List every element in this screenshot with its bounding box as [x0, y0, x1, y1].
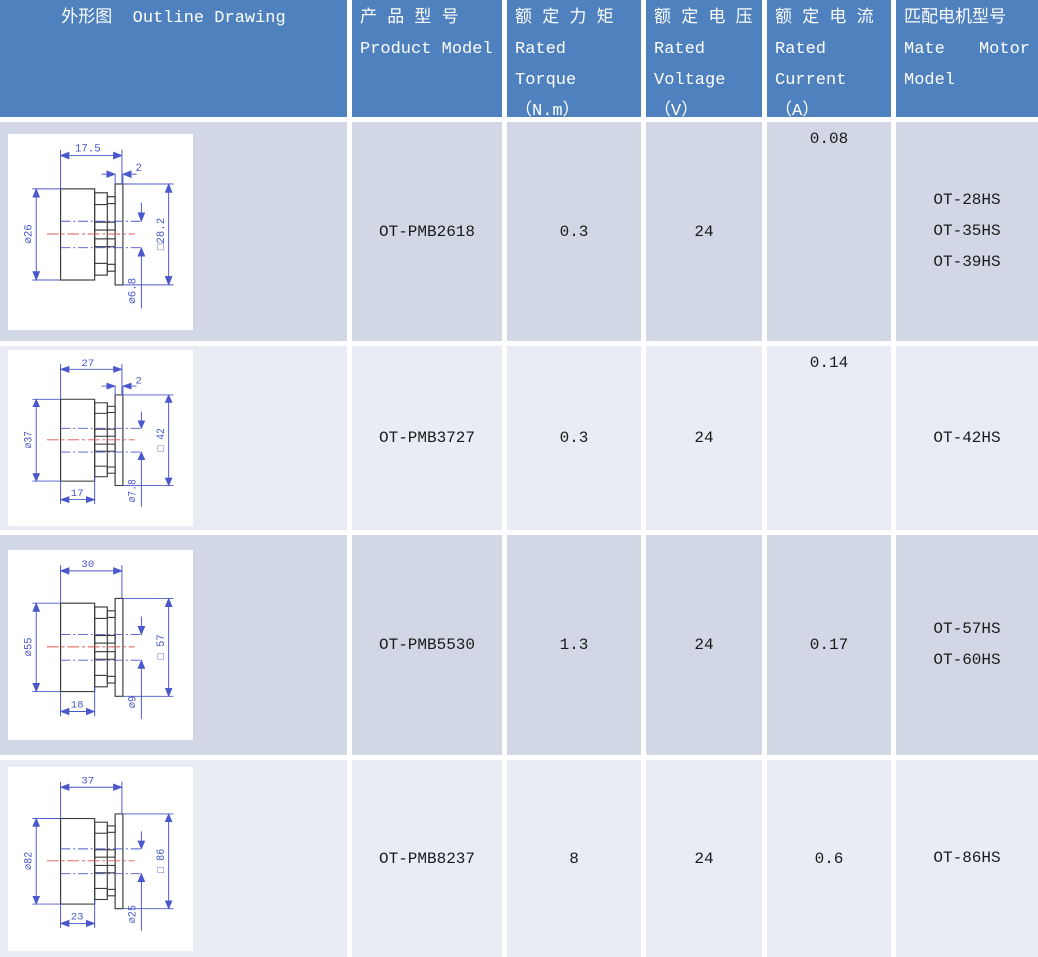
- dim-diameter-label: ⌀37: [24, 431, 36, 448]
- mate-motor-item: OT-39HS: [933, 247, 1000, 278]
- outline-drawing-cell: 37 ⌀82 □ 86 ⌀25 2: [0, 760, 347, 957]
- brake-outline-svg: 17.5 ⌀26 □28.2 ⌀6.8: [8, 134, 193, 330]
- header-rated-voltage-en2: Voltage: [654, 65, 754, 96]
- dim-shaft-label: ⌀25: [127, 905, 139, 923]
- outline-drawing-ot-pmb3727: 27 ⌀37 □ 42 ⌀7.8: [8, 350, 193, 526]
- rated-current-cell: 0.14: [767, 346, 891, 530]
- header-product-model-zh: 产 品 型 号: [360, 3, 494, 34]
- dim-hub-length-label: 17: [71, 489, 84, 499]
- mate-motor-item: OT-28HS: [933, 185, 1000, 216]
- dimension-lines: 30 ⌀55 □ 57 ⌀9 18: [23, 559, 173, 719]
- header-mate-motor: 匹配电机型号 Mate Motor Model: [896, 0, 1038, 117]
- mate-motor-list: OT-57HS OT-60HS: [933, 614, 1000, 676]
- dim-diameter-label: ⌀26: [23, 224, 35, 243]
- header-rated-voltage-zh: 额 定 电 压: [654, 3, 754, 34]
- product-model-cell: OT-PMB8237: [352, 760, 502, 957]
- dim-square-label: □ 57: [156, 634, 168, 659]
- mate-motor-item: OT-57HS: [933, 614, 1000, 645]
- dim-diameter-label: ⌀55: [23, 637, 35, 656]
- outline-drawing-ot-pmb2618: 17.5 ⌀26 □28.2 ⌀6.8: [8, 134, 193, 330]
- rated-voltage-cell: 24: [646, 535, 762, 755]
- rated-torque-cell: 1.3: [507, 535, 641, 755]
- product-model-cell: OT-PMB5530: [352, 535, 502, 755]
- rated-torque-cell: 0.3: [507, 122, 641, 341]
- header-rated-current-zh: 额 定 电 流: [775, 3, 883, 34]
- rated-voltage-cell: 24: [646, 122, 762, 341]
- header-rated-current-en1: Rated: [775, 34, 883, 65]
- header-rated-torque: 额 定 力 矩 Rated Torque （N.m）: [507, 0, 641, 117]
- rated-voltage-cell: 24: [646, 346, 762, 530]
- mate-motor-list: OT-28HS OT-35HS OT-39HS: [933, 185, 1000, 278]
- brake-outline-svg: 37 ⌀82 □ 86 ⌀25 2: [8, 767, 193, 951]
- dim-flange-label: 2: [136, 163, 142, 175]
- mate-motor-item: OT-86HS: [933, 843, 1000, 874]
- dim-shaft-label: ⌀7.8: [128, 479, 140, 502]
- dim-length-label: 27: [81, 359, 94, 369]
- header-mate-motor-en1: Mate Motor: [904, 34, 1030, 65]
- header-product-model-en: Product Model: [360, 34, 494, 65]
- header-outline-drawing-label: 外形图 Outline Drawing: [8, 3, 339, 34]
- dim-hub-length-label: 18: [71, 700, 84, 712]
- dim-shaft-label: ⌀9: [127, 696, 139, 709]
- header-mate-motor-en2: Model: [904, 65, 1030, 96]
- dimension-lines: 17.5 ⌀26 □28.2 ⌀6.8: [23, 143, 173, 308]
- header-rated-torque-en1: Rated: [515, 34, 633, 65]
- spec-table: 外形图 Outline Drawing 产 品 型 号 Product Mode…: [0, 0, 1038, 957]
- header-product-model: 产 品 型 号 Product Model: [352, 0, 502, 117]
- header-rated-current-en2: Current: [775, 65, 883, 96]
- mate-motor-list: OT-42HS: [933, 423, 1000, 454]
- header-rated-torque-en2: Torque: [515, 65, 633, 96]
- dim-hub-length-label: 23: [71, 911, 84, 923]
- dim-square-label: □28.2: [156, 217, 168, 249]
- dim-length-label: 30: [81, 559, 94, 571]
- dimension-lines: 27 ⌀37 □ 42 ⌀7.8: [24, 359, 174, 506]
- dim-diameter-label: ⌀82: [23, 851, 35, 869]
- header-mate-motor-zh: 匹配电机型号: [904, 3, 1030, 34]
- header-rated-torque-unit: （N.m）: [515, 96, 633, 117]
- rated-current-cell: 0.17: [767, 535, 891, 755]
- header-rated-torque-zh: 额 定 力 矩: [515, 3, 633, 34]
- header-rated-voltage-unit: （V）: [654, 96, 754, 117]
- brake-outline-svg: 30 ⌀55 □ 57 ⌀9 18: [8, 550, 193, 740]
- product-model-cell: OT-PMB2618: [352, 122, 502, 341]
- header-outline-drawing: 外形图 Outline Drawing: [0, 0, 347, 117]
- header-rated-current-unit: （A）: [775, 96, 883, 117]
- product-model-cell: OT-PMB3727: [352, 346, 502, 530]
- brake-outline-svg: 27 ⌀37 □ 42 ⌀7.8: [8, 350, 193, 526]
- mate-motor-item: OT-35HS: [933, 216, 1000, 247]
- outline-drawing-cell: 17.5 ⌀26 □28.2 ⌀6.8: [0, 122, 347, 341]
- dim-square-label: □ 86: [156, 848, 168, 872]
- mate-motor-cell: OT-57HS OT-60HS: [896, 535, 1038, 755]
- mate-motor-item: OT-60HS: [933, 645, 1000, 676]
- dimension-lines: 37 ⌀82 □ 86 ⌀25 2: [23, 775, 173, 930]
- rated-voltage-cell: 24: [646, 760, 762, 957]
- mate-motor-cell: OT-28HS OT-35HS OT-39HS: [896, 122, 1038, 341]
- rated-torque-cell: 0.3: [507, 346, 641, 530]
- rated-current-cell: 0.6: [767, 760, 891, 957]
- header-rated-voltage-en1: Rated: [654, 34, 754, 65]
- dim-shaft-label: ⌀6.8: [128, 277, 140, 303]
- rated-torque-cell: 8: [507, 760, 641, 957]
- mate-motor-cell: OT-86HS: [896, 760, 1038, 957]
- dim-flange-label: 2: [136, 377, 142, 387]
- outline-drawing-ot-pmb8237: 37 ⌀82 □ 86 ⌀25 2: [8, 767, 193, 951]
- header-rated-voltage: 额 定 电 压 Rated Voltage （V）: [646, 0, 762, 117]
- outline-drawing-cell: 30 ⌀55 □ 57 ⌀9 18: [0, 535, 347, 755]
- mate-motor-cell: OT-42HS: [896, 346, 1038, 530]
- dim-length-label: 17.5: [75, 143, 101, 155]
- dim-square-label: □ 42: [156, 428, 168, 451]
- mate-motor-list: OT-86HS: [933, 843, 1000, 874]
- dim-length-label: 37: [81, 775, 94, 787]
- outline-drawing-ot-pmb5530: 30 ⌀55 □ 57 ⌀9 18: [8, 550, 193, 740]
- outline-drawing-cell: 27 ⌀37 □ 42 ⌀7.8: [0, 346, 347, 530]
- rated-current-cell: 0.08: [767, 122, 891, 341]
- header-rated-current: 额 定 电 流 Rated Current （A）: [767, 0, 891, 117]
- mate-motor-item: OT-42HS: [933, 423, 1000, 454]
- brake-body-outline: [61, 395, 123, 486]
